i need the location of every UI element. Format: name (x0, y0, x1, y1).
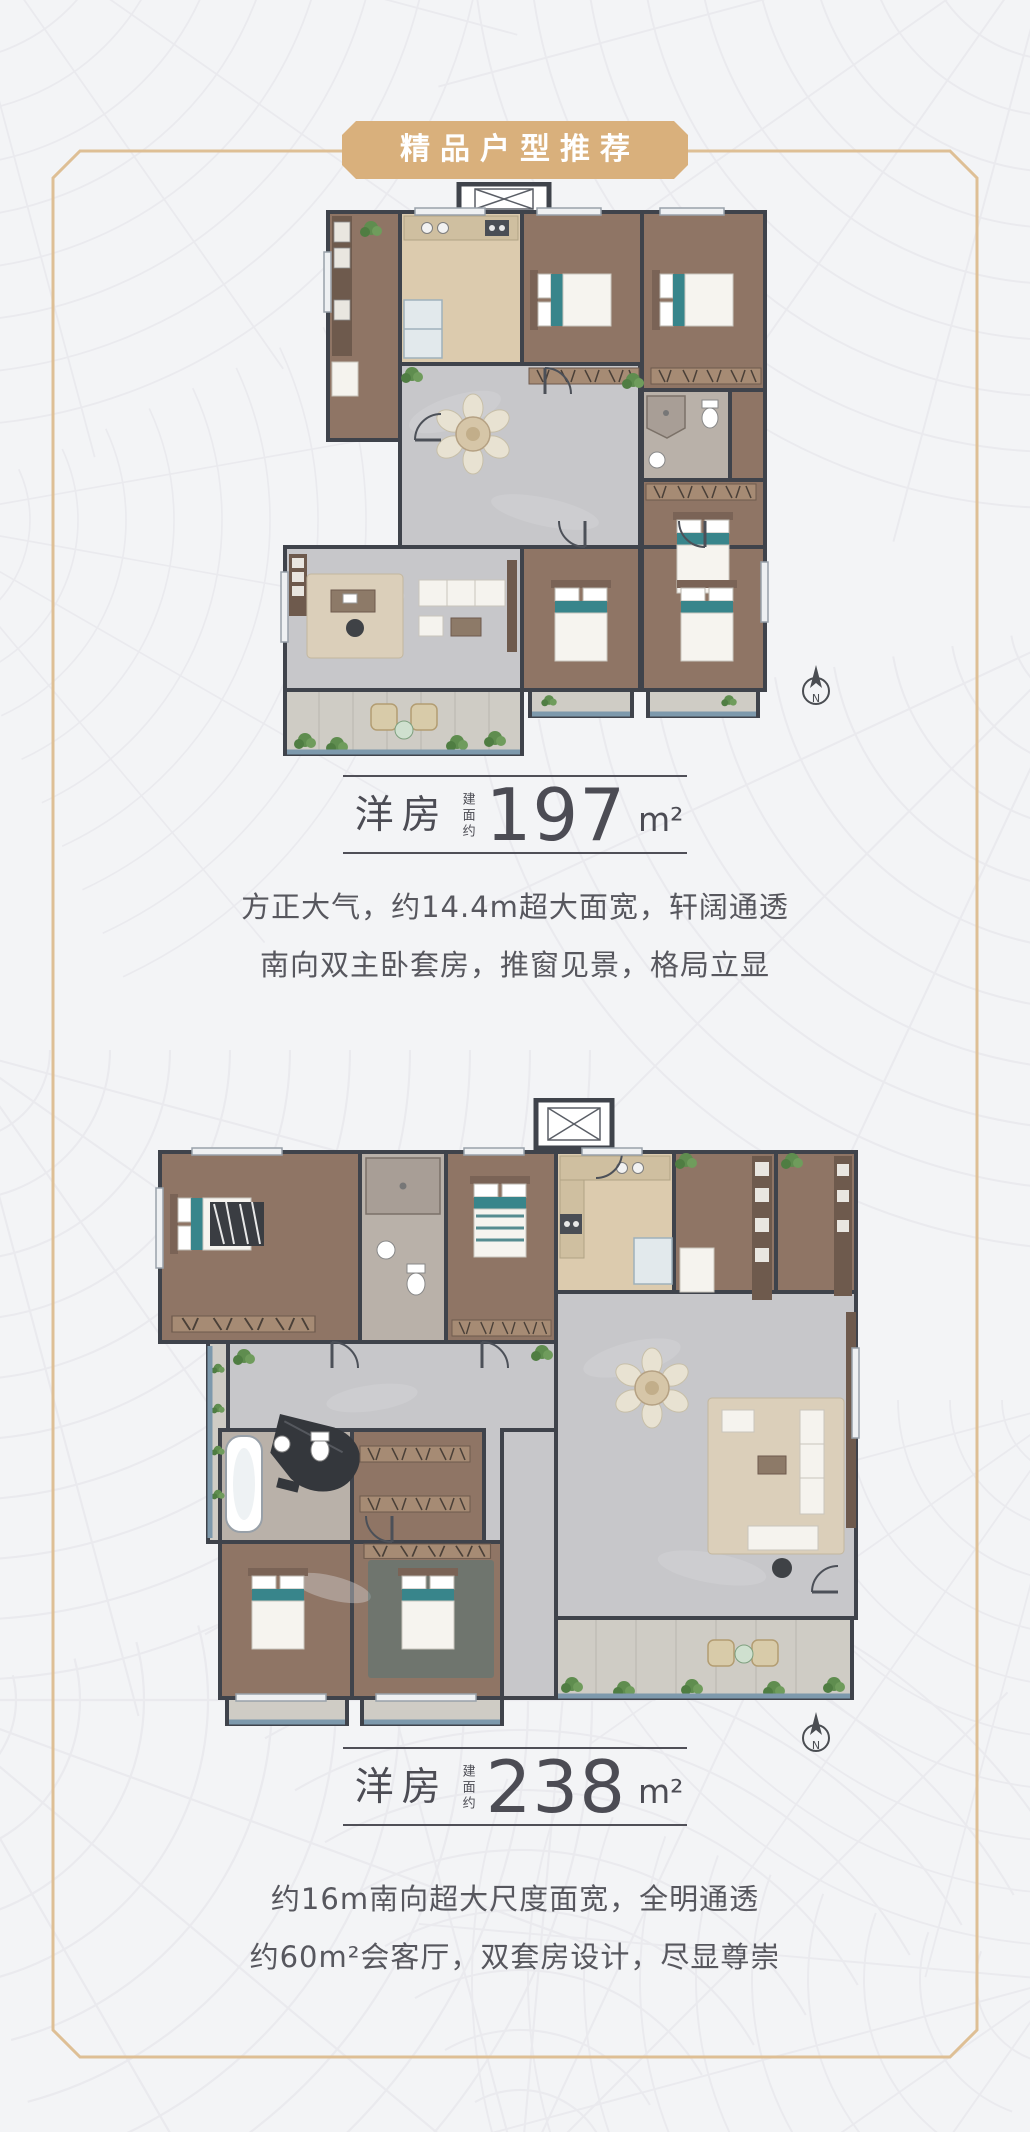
description-line: 约60m²会客厅，双套房设计，尽显尊崇 (0, 1928, 1030, 1986)
southeast-balcony (556, 1618, 852, 1698)
area-unit: m² (638, 1775, 683, 1808)
description-line: 方正大气，约14.4m超大面宽，轩阔通透 (0, 878, 1030, 936)
area-value: 197 (486, 786, 626, 845)
area-label-238: 洋房 建面约 238 m² (0, 1747, 1030, 1826)
area-prefix-label: 建面约 (461, 1764, 474, 1812)
zebra-throw (210, 1202, 264, 1246)
section-title-badge: 精品户型推荐 (342, 121, 688, 179)
area-unit: m² (638, 803, 683, 836)
poster-page: 精品户型推荐 (0, 0, 1030, 2132)
elevator-shaft (536, 1100, 612, 1148)
description-line: 约16m南向超大尺度面宽，全明通透 (0, 1870, 1030, 1928)
south-hallway (502, 1430, 556, 1698)
unit-type-label: 洋房 (347, 796, 449, 835)
area-prefix-label: 建面约 (461, 792, 474, 840)
dining-hall (400, 364, 640, 565)
unit-description-238: 约16m南向超大尺度面宽，全明通透 约60m²会客厅，双套房设计，尽显尊崇 (0, 1870, 1030, 1986)
unit-type-label: 洋房 (347, 1768, 449, 1807)
wardrobe-corridor (730, 390, 765, 480)
description-line: 南向双主卧套房，推窗见景，格局立显 (0, 936, 1030, 994)
area-label-197: 洋房 建面约 197 m² (0, 775, 1030, 854)
floorplan-238 (152, 1098, 864, 1743)
north-compass-icon: N (796, 662, 836, 710)
unit-description-197: 方正大气，约14.4m超大面宽，轩阔通透 南向双主卧套房，推窗见景，格局立显 (0, 878, 1030, 994)
area-value: 238 (486, 1758, 626, 1817)
floorplan-197 (205, 182, 775, 760)
svg-text:N: N (812, 692, 820, 705)
